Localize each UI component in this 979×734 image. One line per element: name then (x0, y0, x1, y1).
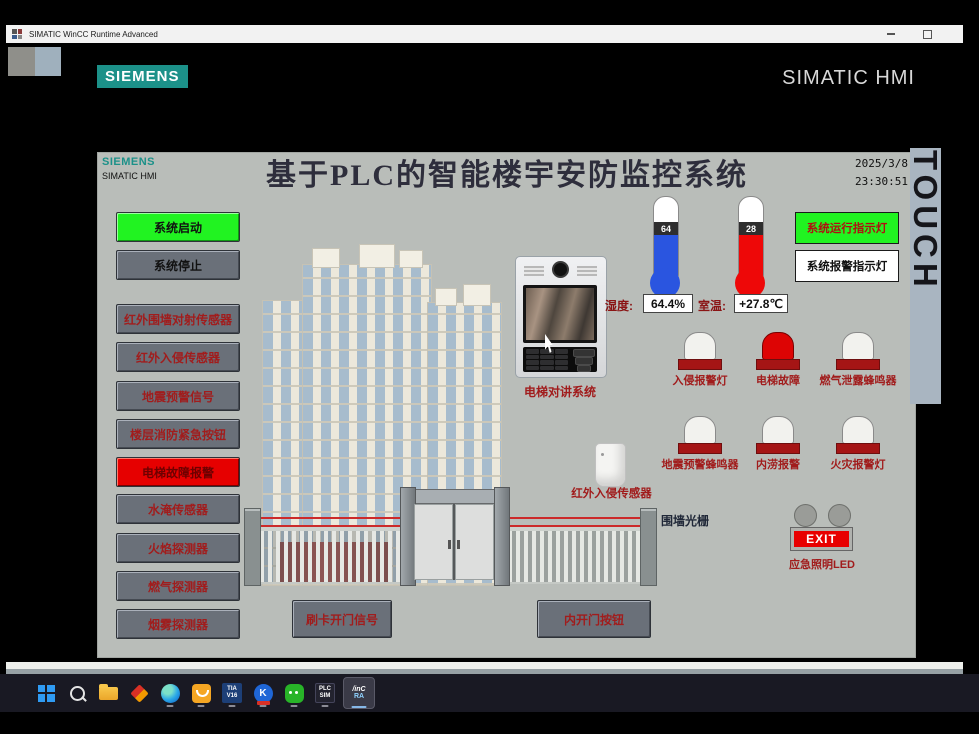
handset-icon (577, 365, 591, 372)
speaker-grille (577, 266, 597, 276)
camera-icon (552, 261, 569, 278)
taskbar-wechat[interactable] (281, 678, 307, 708)
elevator-fault-lamp: 电梯故障 (733, 332, 823, 388)
smoke-detector-button[interactable]: 烟雾探测器 (116, 609, 240, 639)
edge-icon (161, 684, 180, 703)
lamp-dome (842, 332, 874, 360)
hmi-screen: SIEMENS SIMATIC HMI 基于PLC的智能楼宇安防监控系统 202… (97, 152, 916, 658)
intrusion-alarm-lamp: 入侵报警灯 (655, 332, 745, 388)
siemens-logo: SIEMENS (97, 65, 188, 88)
temperature-readout: +27.8℃ (734, 294, 788, 313)
temperature-label: 室温: (698, 297, 726, 314)
store-icon (192, 684, 211, 703)
hmi-siemens-logo: SIEMENS (102, 156, 155, 168)
window-bottom-edge (6, 662, 963, 674)
emergency-led-label: 应急照明LED (777, 556, 867, 572)
desktop: SIMATIC WinCC Runtime Advanced SIEMENS S… (0, 0, 979, 734)
taskbar-k-app[interactable]: K (250, 678, 276, 708)
k-app-icon: K (254, 684, 273, 703)
temperature-thermometer: 28 (738, 196, 764, 278)
waterlogging-alarm-lamp: 内涝报警 (733, 416, 823, 472)
fence-pillar-right (640, 508, 657, 586)
taskbar-wincc-runtime[interactable]: /inCRA (343, 677, 375, 709)
system-alarm-indicator: 系统报警指示灯 (795, 250, 899, 282)
building-roof-block (359, 244, 395, 268)
building-roof-block (463, 284, 491, 306)
taskbar: TIAV16 K PLCSIM /inCRA (0, 674, 979, 712)
taskbar-search[interactable] (64, 678, 90, 708)
wechat-icon (285, 684, 304, 703)
lamp-base (756, 359, 800, 370)
taskbar-edge[interactable] (157, 678, 183, 708)
lamp-base (756, 443, 800, 454)
humidity-label: 湿度: (605, 297, 633, 314)
floor-fire-emergency-button[interactable]: 楼层消防紧急按钮 (116, 419, 240, 449)
system-stop-button[interactable]: 系统停止 (116, 250, 240, 280)
building-roof-block (435, 288, 457, 306)
minimize-button[interactable] (877, 25, 905, 43)
exit-lamp-left (794, 504, 817, 527)
fence-pillar-left (244, 508, 261, 586)
wincc-runtime-icon: /inCRA (349, 683, 369, 703)
lamp-base (678, 443, 722, 454)
humidity-thermometer: 64 (653, 196, 679, 278)
background-artifact (35, 47, 61, 76)
lamp-dome-lit (762, 332, 794, 360)
date-display: 2025/3/8 (828, 157, 908, 170)
fence-grating-label: 围墙光栅 (661, 512, 709, 529)
hmi-simatic-label: SIMATIC HMI (102, 171, 157, 181)
taskbar-app-diamond[interactable] (126, 678, 152, 708)
system-start-button[interactable]: 系统启动 (116, 212, 240, 242)
pir-sensor-label: 红外入侵传感器 (559, 485, 664, 501)
search-icon (70, 686, 85, 701)
windows-logo-icon (38, 685, 55, 702)
fence-left (260, 527, 400, 584)
exit-sign-text: EXIT (794, 531, 849, 547)
lamp-dome (842, 416, 874, 444)
diamond-icon (130, 684, 148, 702)
plcsim-icon: PLCSIM (315, 683, 335, 703)
lamp-base (836, 443, 880, 454)
lamp-dome (684, 332, 716, 360)
gate-doors (414, 504, 494, 580)
window-content: SIEMENS SIMATIC HMI SIEMENS SIMATIC HMI … (6, 43, 963, 662)
touch-bezel-label: TOUCH (910, 148, 941, 404)
taskbar-tia-portal[interactable]: TIAV16 (219, 678, 245, 708)
keypad-keys (526, 349, 568, 370)
pir-sensor-device (595, 443, 626, 487)
temperature-value-badge: 28 (739, 222, 763, 235)
minimize-icon (887, 33, 895, 35)
intercom-keypad (523, 347, 597, 372)
flood-sensor-button[interactable]: 水淹传感器 (116, 494, 240, 524)
lamp-dome (762, 416, 794, 444)
gas-leak-buzzer-lamp: 燃气泄露蜂鸣器 (813, 332, 903, 388)
tia-v16-icon: TIAV16 (222, 683, 242, 703)
gate-post-right (494, 487, 510, 586)
lamp-dome (684, 416, 716, 444)
page-title: 基于PLC的智能楼宇安防监控系统 (247, 150, 767, 194)
card-reader-icon (575, 357, 593, 365)
system-running-indicator: 系统运行指示灯 (795, 212, 899, 244)
maximize-icon (923, 30, 932, 39)
inner-open-door-button[interactable]: 内开门按钮 (537, 600, 651, 638)
gate-door-panel (455, 504, 494, 580)
elevator-intercom-device (515, 256, 607, 378)
window-title: SIMATIC WinCC Runtime Advanced (29, 30, 158, 39)
flame-detector-button[interactable]: 火焰探测器 (116, 533, 240, 563)
exit-sign: EXIT (790, 527, 853, 551)
earthquake-warning-button[interactable]: 地震预警信号 (116, 381, 240, 411)
elevator-fault-alarm-button[interactable]: 电梯故障报警 (116, 457, 240, 487)
humidity-readout: 64.4% (643, 294, 693, 313)
gate-handle (448, 540, 451, 549)
taskbar-plcsim[interactable]: PLCSIM (312, 678, 338, 708)
lamp-base (678, 359, 722, 370)
building-roof-block (312, 248, 340, 268)
earthquake-buzzer-lamp: 地震预警蜂鸣器 (655, 416, 745, 472)
intercom-video-feed (526, 288, 594, 340)
folder-icon (99, 687, 118, 700)
time-display: 23:30:51 (828, 175, 908, 188)
app-icon (12, 29, 22, 39)
window-title-bar[interactable]: SIMATIC WinCC Runtime Advanced (6, 25, 963, 44)
intercom-video-screen (523, 285, 597, 343)
wifi-icon (573, 349, 595, 357)
lamp-base (836, 359, 880, 370)
gas-detector-button[interactable]: 燃气探测器 (116, 571, 240, 601)
maximize-button[interactable] (913, 25, 941, 43)
fence-right (508, 527, 640, 584)
exit-lamp-right (828, 504, 851, 527)
start-button[interactable] (33, 678, 59, 708)
background-artifact (8, 47, 35, 76)
taskbar-file-explorer[interactable] (95, 678, 121, 708)
simatic-hmi-brand: SIMATIC HMI (782, 67, 915, 90)
humidity-value-badge: 64 (654, 222, 678, 235)
ir-intrusion-sensor-button[interactable]: 红外入侵传感器 (116, 342, 240, 372)
gate-handle (457, 540, 460, 549)
gate-top-bar (400, 489, 508, 504)
fire-alarm-lamp: 火灾报警灯 (813, 416, 903, 472)
card-swipe-open-button[interactable]: 刷卡开门信号 (292, 600, 392, 638)
speaker-grille (524, 266, 544, 276)
building-roof-block (399, 250, 423, 268)
taskbar-store[interactable] (188, 678, 214, 708)
ir-wall-beam-sensor-button[interactable]: 红外围墙对射传感器 (116, 304, 240, 334)
intercom-label: 电梯对讲系统 (519, 383, 601, 400)
